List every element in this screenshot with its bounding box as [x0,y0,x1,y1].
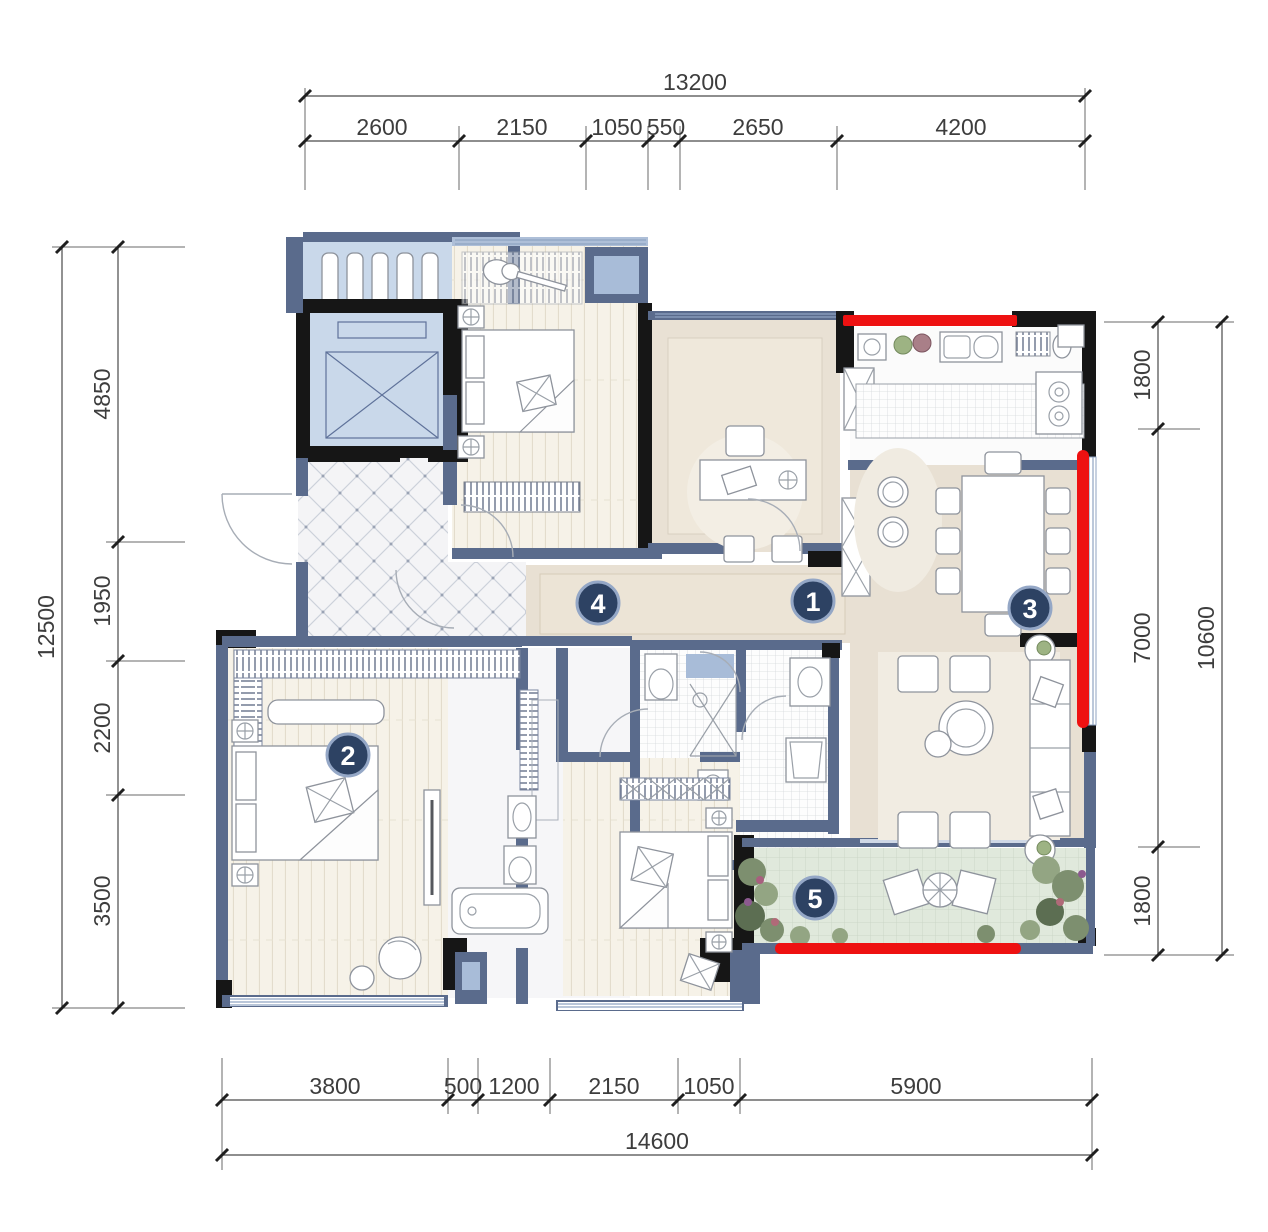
dining-chair-icon [1046,568,1070,594]
room-marker-5-label: 5 [807,884,822,914]
guest-chair-icon [772,536,802,562]
room-marker-1-label: 1 [805,587,820,617]
dim-right-seg-1: 1800 [1129,349,1155,400]
dim-top-seg-2: 2150 [496,114,547,140]
room-marker-2-label: 2 [340,741,355,771]
dim-left-total: 12500 [33,595,59,659]
dim-bottom-total: 14600 [625,1128,689,1154]
dish-rack-icon [1016,332,1050,356]
room-marker-2: 2 [327,734,369,776]
room-marker-4-label: 4 [590,589,605,619]
dim-bottom-seg-4: 2150 [588,1073,639,1099]
dining-chair-icon [936,568,960,594]
sink-icon [790,658,830,706]
wardrobe-icon [620,778,730,800]
dim-right-seg-3: 1800 [1129,875,1155,926]
highlight-line-right [1077,450,1089,728]
coffee-table-icon [925,731,951,757]
highlight-line-bottom [775,943,1021,954]
dim-bottom-seg-1: 3800 [309,1073,360,1099]
floor-plan-drawing: 1 2 3 4 5 13200 2600 2150 1050 550 2650 … [0,0,1268,1232]
patio-chair-icon [952,870,996,914]
entry-door-icon [222,494,292,564]
dim-top-seg-1: 2600 [356,114,407,140]
armchair-icon [950,812,990,848]
sink-icon [508,796,536,838]
dim-left-seg-3: 2200 [89,702,115,753]
dim-top-seg-3: 1050 [591,114,642,140]
stove-icon [1036,372,1082,434]
plant-pot-icon [913,334,931,352]
wardrobe-icon [520,690,538,790]
dim-left-seg-4: 3500 [89,875,115,926]
living-room-furniture [878,635,1070,865]
bathtub-icon [452,888,548,934]
dim-top-total: 13200 [663,69,727,95]
dim-bottom-seg-3: 1200 [488,1073,539,1099]
room-marker-4: 4 [577,582,619,624]
dimension-chain-left: 12500 4850 1950 2200 3500 [33,241,185,1014]
plant-pot-icon [894,336,912,354]
elevator [296,299,468,458]
room-marker-3-label: 3 [1022,594,1037,624]
armchair-icon [898,812,938,848]
dim-left-seg-2: 1950 [89,575,115,626]
floor-plan-page: 1 2 3 4 5 13200 2600 2150 1050 550 2650 … [0,0,1268,1232]
room-marker-5: 5 [794,877,836,919]
hood-icon [1058,325,1084,347]
dim-top-seg-6: 4200 [935,114,986,140]
wardrobe-icon [234,650,520,678]
dim-top-seg-5: 2650 [732,114,783,140]
dimension-chain-top: 13200 2600 2150 1050 550 2650 4200 [299,69,1091,190]
dim-bottom-seg-2: 500 [444,1073,482,1099]
dining-chair-icon [1046,488,1070,514]
dining-chair-icon [985,452,1021,474]
entry-hall-floor-2 [396,562,526,644]
lounge-chair-icon [379,937,421,979]
room-marker-1: 1 [792,580,834,622]
armchair-icon [898,656,938,692]
dim-right-total: 10600 [1193,606,1219,670]
dining-chair-icon [936,528,960,554]
highlight-line-top [843,315,1017,326]
dimension-chain-right: 1800 7000 1800 10600 [1104,316,1234,961]
dimension-chain-bottom: 3800 500 1200 2150 1050 5900 14600 [216,1058,1098,1170]
toilet-icon [504,846,536,884]
armchair-icon [950,656,990,692]
dim-bottom-seg-5: 1050 [683,1073,734,1099]
shelf-icon [686,654,734,678]
dim-top-seg-4: 550 [647,114,685,140]
dim-right-seg-2: 7000 [1129,612,1155,663]
dim-bottom-seg-6: 5900 [890,1073,941,1099]
desk-chair-icon [726,426,764,456]
piano-icon [464,482,580,512]
bench-icon [268,700,384,724]
dim-left-seg-1: 4850 [89,368,115,419]
dining-chair-icon [1046,528,1070,554]
guest-chair-icon [724,536,754,562]
dining-chair-icon [936,488,960,514]
room-marker-3: 3 [1009,587,1051,629]
small-appliance-icon [858,334,886,360]
ottoman-icon [350,966,374,990]
